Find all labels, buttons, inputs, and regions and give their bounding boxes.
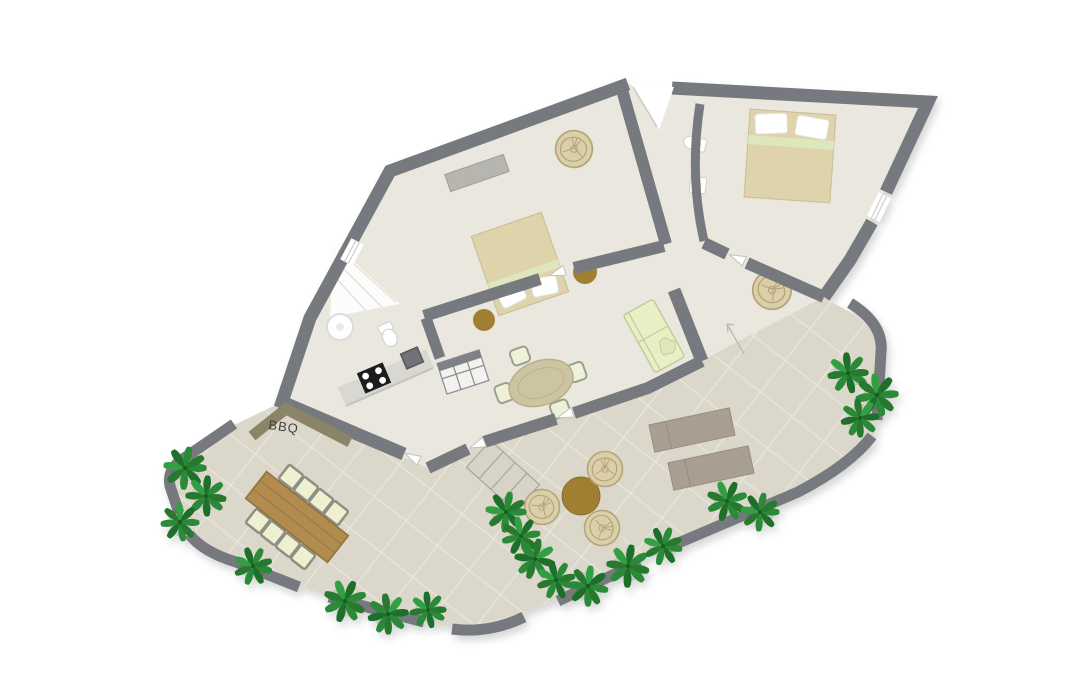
rattan-pouf [588, 452, 623, 487]
floor-plan-page: BBQ [0, 0, 1080, 700]
plan-root: BBQ [157, 82, 928, 642]
floor-plan-svg: BBQ [0, 0, 1080, 700]
side-table [473, 309, 495, 331]
double-bed [744, 109, 836, 203]
